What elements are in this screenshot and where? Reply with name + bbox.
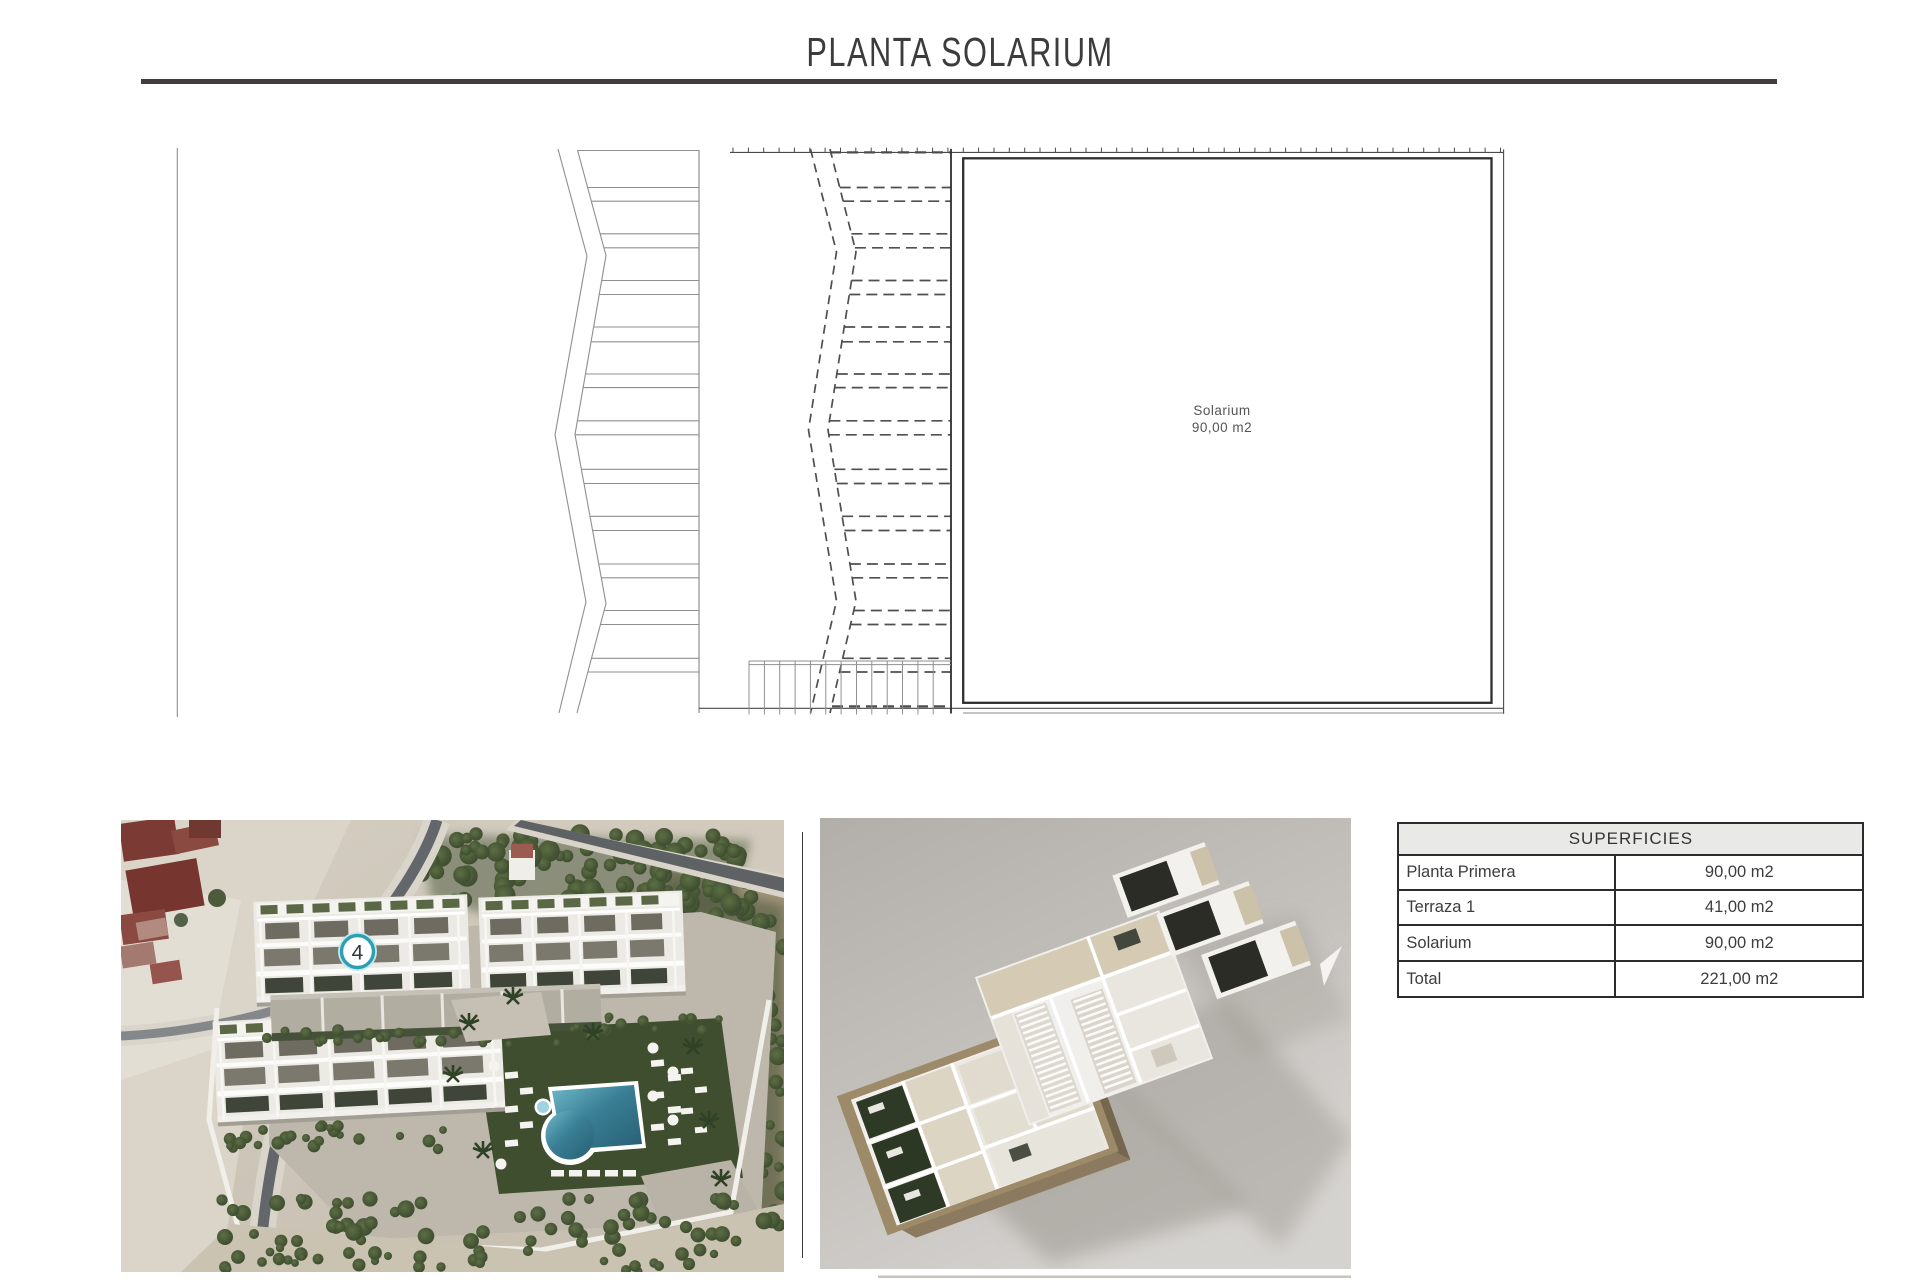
svg-text:4: 4 bbox=[351, 941, 363, 964]
svg-text:90,00 m2: 90,00 m2 bbox=[1192, 420, 1252, 435]
svg-text:Solarium: Solarium bbox=[1193, 403, 1250, 418]
